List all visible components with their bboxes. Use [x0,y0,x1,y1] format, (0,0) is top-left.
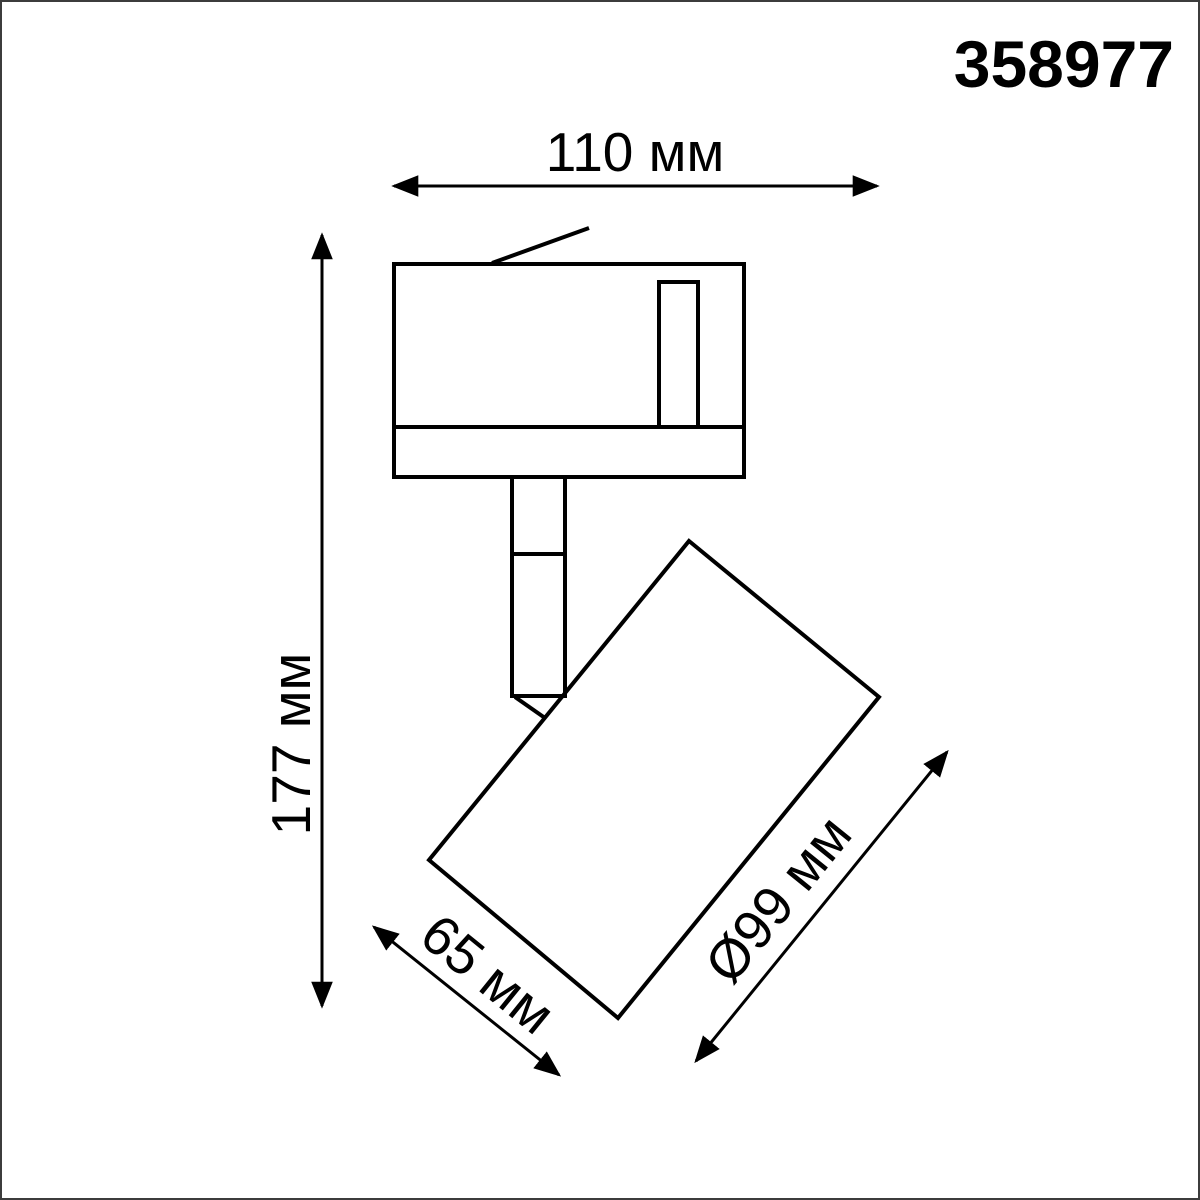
stem-body [512,477,565,696]
mounting-stem [512,477,565,718]
product-code: 358977 [954,27,1174,101]
adapter-lever [492,228,589,263]
dimension-label-overall-width: 110 мм [546,121,725,183]
dimension-label-overall-height: 177 мм [260,653,322,836]
dimension-head-length: 65 мм [374,902,567,1075]
drawing-canvas: 358977 110 мм [0,0,1200,1200]
dimension-overall-height: 177 мм [260,235,322,1006]
dimension-overall-width: 110 мм [394,121,877,186]
adapter-slot [659,282,698,427]
adapter-body [394,264,744,477]
dimension-label-head-diameter: Ø99 мм [693,804,864,994]
track-adapter [394,228,744,477]
dimension-head-diameter: Ø99 мм [693,752,947,1061]
technical-drawing: 358977 110 мм [2,2,1200,1200]
stem-pivot-joint [515,697,545,718]
